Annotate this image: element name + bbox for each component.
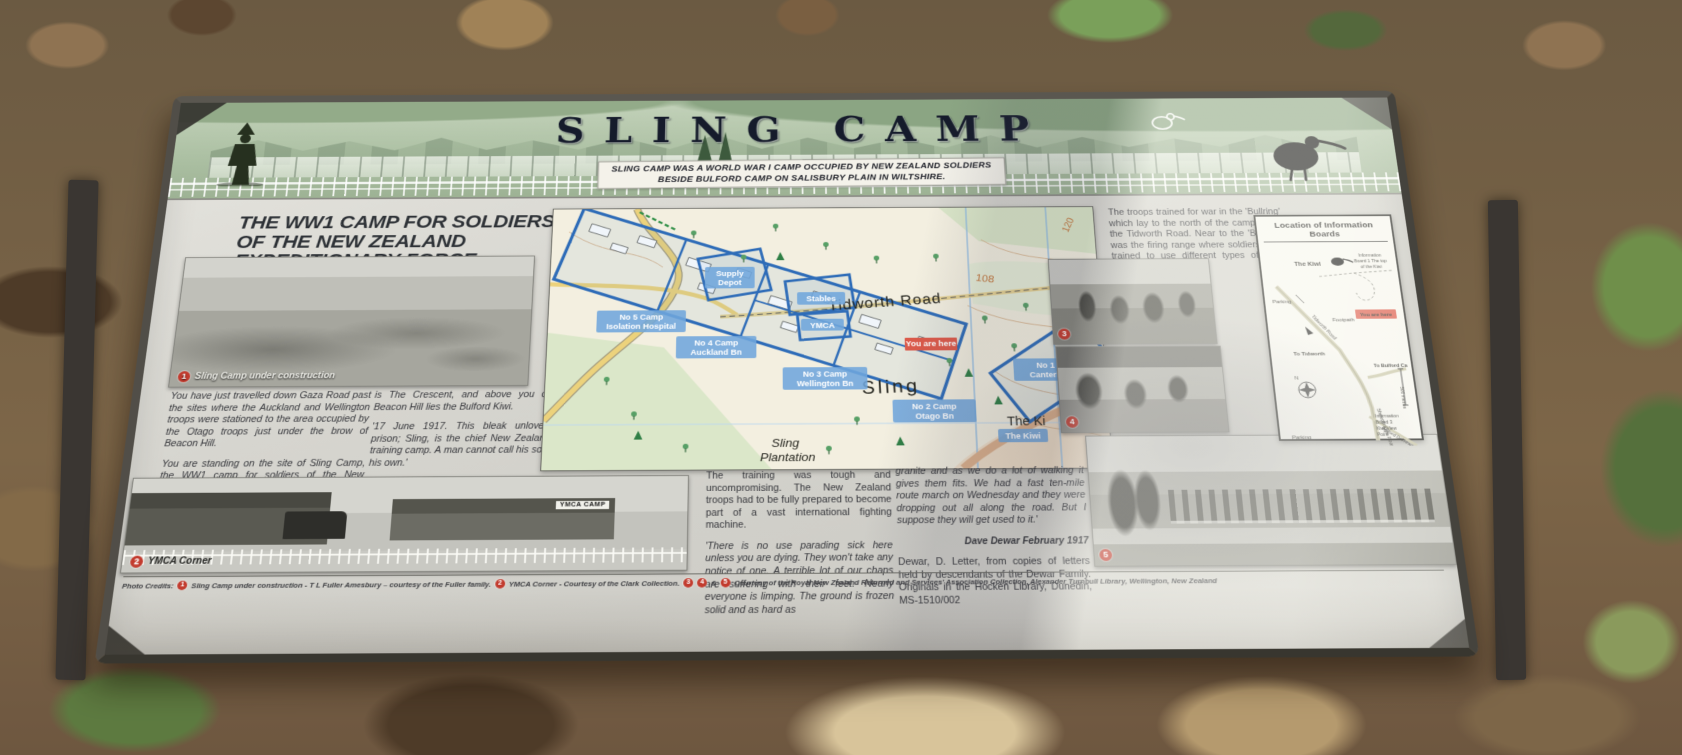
loc-board3-2: Board 3 xyxy=(1375,420,1393,425)
loc-board1-2: Board 1 The top xyxy=(1354,259,1388,264)
frame-corner-bracket xyxy=(1425,619,1469,648)
map-plantation-line2: Plantation xyxy=(760,450,816,464)
frame-corner-bracket xyxy=(105,626,149,655)
photo1-caption: 1 Sling Camp under construction xyxy=(177,370,335,382)
loc-parking-bottom: Parking xyxy=(1292,435,1312,441)
dewar-letter-column: granite and as we do a lot of walking it… xyxy=(895,465,1094,616)
photo2-number-badge: 2 xyxy=(129,556,143,568)
ymca-camp-sign: YMCA CAMP xyxy=(556,500,610,508)
map-plantation-line1: Sling xyxy=(772,436,800,450)
loc-footpath: Footpath xyxy=(1332,318,1355,324)
board-leg-left xyxy=(55,180,98,681)
loc-board1-3: of the Kiwi xyxy=(1360,264,1382,269)
location-diagram: The Kiwi Information Board 1 The top of … xyxy=(1262,243,1419,446)
map-label-camp2-2: Otago Bn xyxy=(915,411,954,421)
board-subtitle: SLING CAMP WAS A WORLD WAR I CAMP OCCUPI… xyxy=(597,157,1006,189)
credit-badge-2: 2 xyxy=(495,579,505,588)
photo-soldiers-training: 3 xyxy=(1048,258,1218,345)
location-panel-title: Location of Information Boards xyxy=(1261,221,1387,243)
photo-soldiers-parade: 5 xyxy=(1085,434,1457,567)
banner: SLING CAMP SLING CAMP WAS A WORLD WAR I … xyxy=(167,98,1401,201)
photo-ymca-corner: YMCA CAMP 2 YMCA Corner xyxy=(120,475,689,573)
loc-parking-top: Parking xyxy=(1272,300,1291,305)
photo3-number-badge: 3 xyxy=(1058,329,1071,340)
kiwi-map-icon xyxy=(1331,257,1354,265)
map-label-camp2-1: No 2 Camp xyxy=(912,401,957,411)
soldiers-row xyxy=(1168,488,1435,523)
map-label-camp4-1: No 4 Camp xyxy=(694,338,738,347)
ambulance-van xyxy=(283,511,347,539)
loc-board3-4: Point xyxy=(1377,432,1389,437)
photo-sling-camp-under-construction: 1 Sling Camp under construction xyxy=(168,256,535,388)
photo1-number-badge: 1 xyxy=(177,371,191,382)
map-label-camp4-2: Auckland Bn xyxy=(690,347,741,356)
loc-the-kiwi: The Kiwi xyxy=(1294,261,1321,267)
map-drawing: Tidworth Road Sling Sling Plantation The… xyxy=(541,207,1112,470)
loc-to-bulford: To Bulford Camp xyxy=(1373,363,1415,369)
map-you-are-here: You are here xyxy=(906,339,957,348)
credit-badge-4: 4 xyxy=(697,578,707,587)
map-label-stables: Stables xyxy=(806,294,836,303)
map-label-the-kiwi: The Kiwi xyxy=(1005,431,1041,441)
map-label-ymca: YMCA xyxy=(810,321,835,330)
letter-attribution: Dave Dewar February 1917 xyxy=(897,535,1089,548)
map-label-camp5-2: Isolation Hospital xyxy=(606,321,676,330)
subtitle-line2: BESIDE BULFORD CAMP ON SALISBURY PLAIN I… xyxy=(657,172,945,184)
map-place-the-kiwi: The Ki xyxy=(1007,414,1046,428)
photo4-number-badge: 4 xyxy=(1066,416,1079,427)
map-place-sling: Sling xyxy=(861,376,920,399)
loc-compass-n: N xyxy=(1294,376,1299,382)
loc-board3-1: Information xyxy=(1375,414,1400,419)
credits-prefix: Photo Credits: xyxy=(122,581,175,590)
map-label-supply-2: Depot xyxy=(718,278,742,287)
map-label-camp3-2: Wellington Bn xyxy=(797,379,854,389)
credit-badge-5: 5 xyxy=(720,578,730,587)
board-leg-right xyxy=(1488,200,1526,680)
training-text-column: The training was tough and uncompromisin… xyxy=(704,470,895,626)
loc-board1-1: Information xyxy=(1358,253,1382,258)
photo-soldiers-field: 4 xyxy=(1055,346,1229,433)
contour-108: 108 xyxy=(975,273,994,286)
photo-of-information-board: { "banner": { "title": "SLING CAMP", "su… xyxy=(0,0,1682,755)
loc-to-tidworth: To Tidworth xyxy=(1293,352,1326,358)
photo5-number-badge: 5 xyxy=(1099,549,1113,561)
photo2-caption: 2 YMCA Corner xyxy=(129,555,212,568)
map-label-camp3-1: No 3 Camp xyxy=(803,369,847,378)
location-of-information-boards-panel: Location of Information Boards The Kiwi … xyxy=(1253,214,1424,440)
map-label-supply-1: Supply xyxy=(716,269,744,278)
board-title: SLING CAMP xyxy=(174,107,1395,153)
loc-board3-3: Kiwi View xyxy=(1376,426,1398,431)
board-surface: SLING CAMP SLING CAMP WAS A WORLD WAR I … xyxy=(105,98,1469,655)
information-board: SLING CAMP SLING CAMP WAS A WORLD WAR I … xyxy=(94,91,1479,664)
map-label-camp5-1: No 5 Camp xyxy=(619,312,663,321)
credit-badge-3: 3 xyxy=(683,578,693,587)
camp-map: Tidworth Road Sling Sling Plantation The… xyxy=(540,206,1113,471)
loc-scale: 500 metres xyxy=(1399,387,1407,409)
loc-you-are-here: You are here xyxy=(1360,312,1393,318)
credit-badge-1: 1 xyxy=(177,581,188,590)
